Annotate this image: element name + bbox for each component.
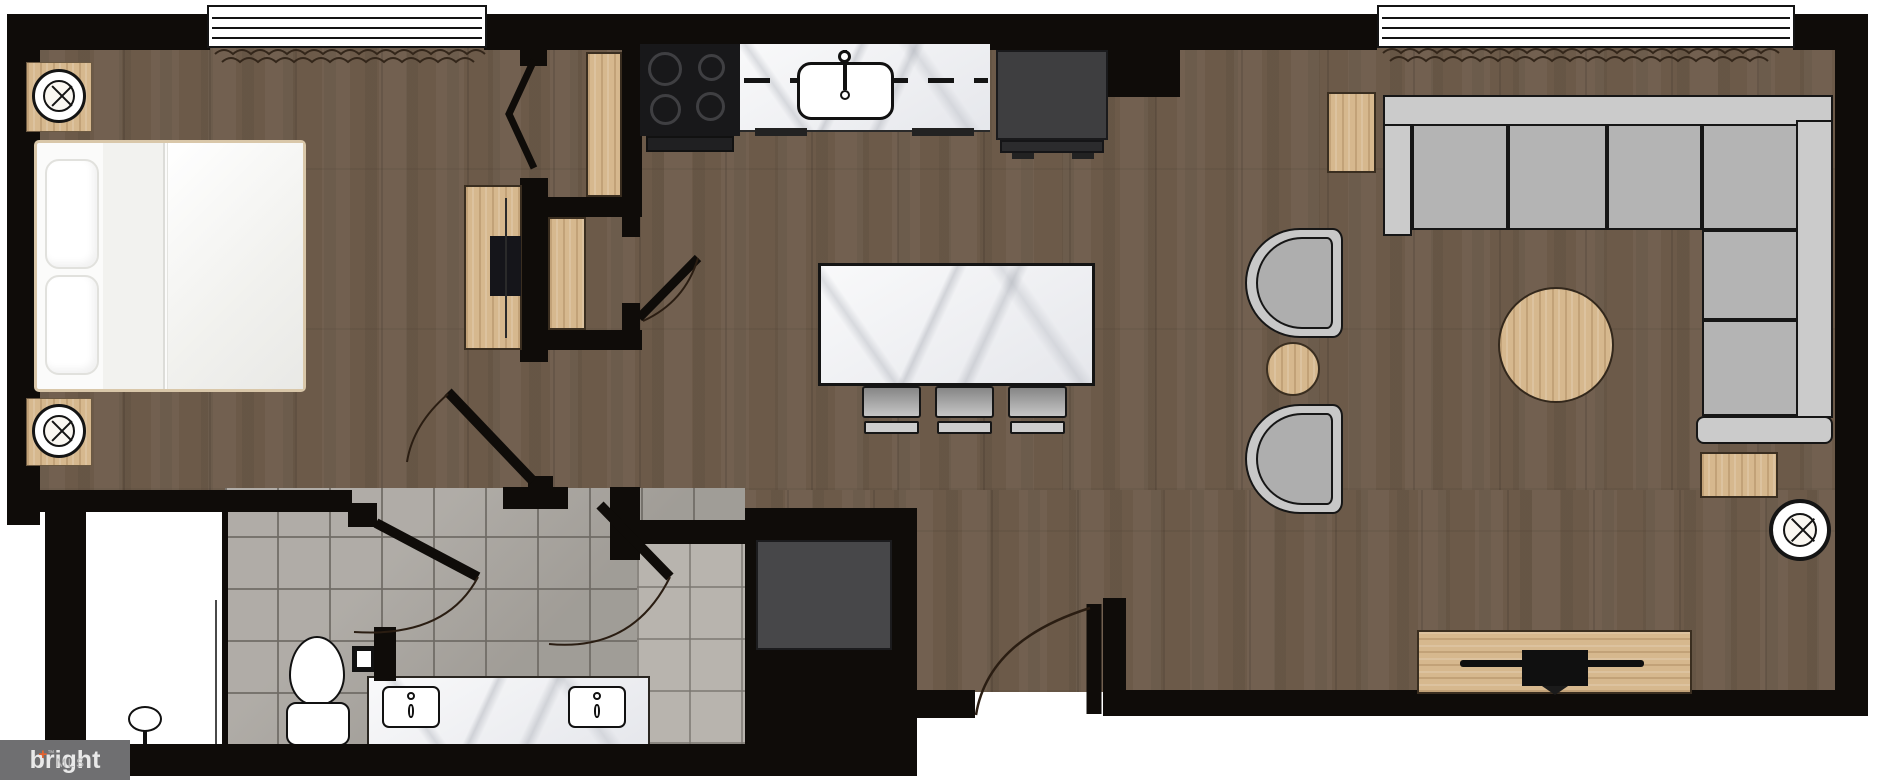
wall-toilet-stub: [374, 627, 396, 681]
round-area-rug: [1498, 287, 1614, 403]
sofa-cushion: [1607, 124, 1702, 230]
ceiling-speaker-icon-living: [1769, 499, 1831, 561]
window-sash-line: [212, 17, 482, 19]
wall-closet-door-stub-top: [622, 217, 640, 237]
window-sash-line: [1382, 37, 1790, 39]
bar-stool-footrest: [937, 421, 992, 434]
window-sash-line: [1382, 17, 1790, 19]
window-sash-line: [212, 27, 482, 29]
faucet-dot-right: [593, 692, 601, 700]
refrigerator-handle: [1000, 140, 1104, 153]
refrigerator-foot: [1072, 153, 1094, 159]
bar-stool-footrest: [1010, 421, 1065, 434]
logo-plus-icon: +: [39, 746, 48, 763]
wall-stub-bath-a: [348, 503, 377, 527]
wall-closet-door-stub-bottom: [622, 303, 640, 330]
tv-center-unit: [1522, 650, 1588, 686]
round-side-table: [1266, 342, 1320, 396]
refrigerator: [996, 50, 1108, 140]
bar-stool: [935, 386, 994, 418]
wall-closet-east: [622, 48, 642, 217]
sofa-cushion: [1412, 124, 1508, 230]
floor-plan: bright + ™ MLS: [0, 0, 1878, 780]
wall-top-left: [20, 14, 210, 50]
bed: [34, 140, 306, 392]
accent-chair-seat: [1256, 413, 1333, 505]
bed-pillow: [45, 159, 99, 269]
toilet-bowl: [289, 636, 345, 706]
sofa-arm-left: [1383, 124, 1412, 236]
dresser-tv-edge: [505, 198, 507, 338]
window-sash-line: [1382, 27, 1790, 29]
closet-wardrobe-panel: [548, 217, 586, 330]
wall-entry-jamb: [1103, 598, 1126, 716]
bed-pillow: [45, 275, 99, 375]
kitchen-island: [818, 263, 1095, 386]
tv-stand-notch: [1542, 686, 1568, 695]
window-sash-line: [212, 37, 482, 39]
wall-bottom-entry-left: [917, 690, 975, 718]
kitchen-drain: [840, 90, 850, 100]
kitchen-faucet-head: [838, 50, 851, 63]
counter-foot: [912, 128, 974, 136]
brightmls-watermark: bright + ™ MLS: [0, 740, 130, 780]
accent-chair-seat: [1256, 237, 1333, 329]
bed-duvet: [167, 143, 303, 389]
sofa-back-right: [1796, 120, 1833, 418]
window-living: [1377, 5, 1795, 48]
wall-kitchen-jut: [1108, 14, 1180, 97]
refrigerator-foot: [1012, 153, 1034, 159]
burner: [698, 54, 725, 81]
toilet-paper-roll: [357, 651, 371, 667]
side-table-north: [1327, 92, 1376, 173]
wall-nook-top: [633, 520, 747, 544]
tall-cabinet: [586, 52, 622, 197]
burner: [696, 92, 725, 121]
sofa-cushion-corner: [1702, 124, 1798, 230]
sofa-cushion: [1702, 320, 1798, 416]
burner: [650, 94, 681, 125]
counter-foot: [755, 128, 807, 136]
sofa-arm-bottom: [1696, 416, 1833, 444]
wall-bath-bottom: [40, 744, 830, 776]
bathroom-nook-floor: [637, 540, 745, 744]
faucet-drop-right: [594, 704, 600, 718]
wood-floor-living-south: [905, 490, 1838, 692]
wall-bifold-hinge: [520, 48, 547, 66]
wall-hinge-bedroom-door: [528, 476, 553, 496]
wall-bedroom-south: [7, 490, 352, 512]
toilet-tank: [286, 702, 350, 746]
wall-closet-south: [528, 330, 642, 350]
ceiling-speaker-icon: [32, 404, 86, 458]
shower-glass-line: [215, 600, 217, 744]
faucet-dot-left: [407, 692, 415, 700]
sofa-back-top: [1383, 95, 1833, 126]
washer-dryer: [756, 540, 892, 650]
range-cooktop: [640, 44, 740, 136]
sofa-cushion: [1702, 230, 1798, 320]
sofa-cushion: [1508, 124, 1607, 230]
bed-sheet-band: [103, 143, 165, 389]
bar-stool: [862, 386, 921, 418]
logo-suffix-text: MLS: [56, 756, 85, 770]
faucet-drop-left: [408, 704, 414, 718]
logo-trademark: ™: [47, 750, 54, 757]
wall-right: [1835, 14, 1868, 716]
side-table-south: [1700, 452, 1778, 498]
ceiling-speaker-icon: [32, 69, 86, 123]
wall-left-lower: [45, 505, 80, 750]
bar-stool: [1008, 386, 1067, 418]
bar-stool-footrest: [864, 421, 919, 434]
window-bedroom: [207, 5, 487, 48]
shower-head: [128, 706, 162, 732]
burner: [648, 52, 682, 86]
range-front-bar: [646, 136, 734, 152]
